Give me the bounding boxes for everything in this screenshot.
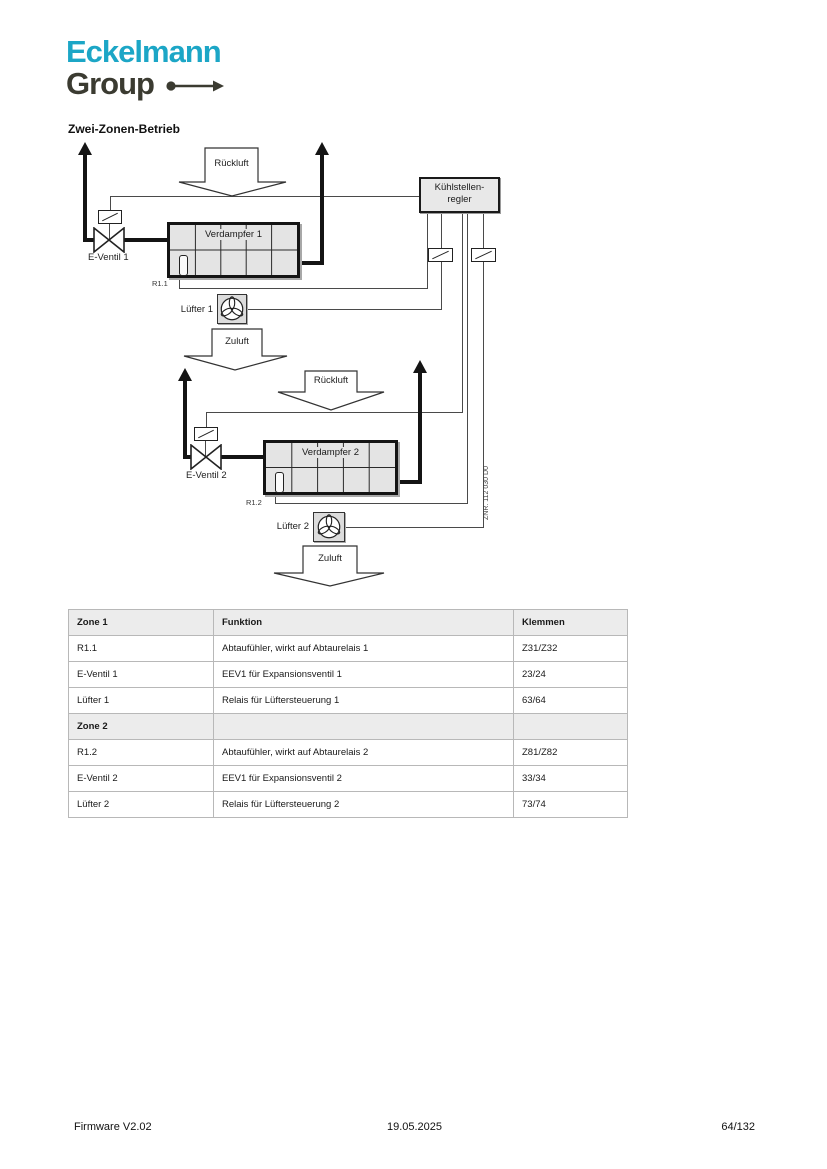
table-row: R1.2 Abtaufühler, wirkt auf Abtaurelais … xyxy=(69,740,628,766)
controller-label-line1: Kühlstellen- xyxy=(421,182,498,194)
wire-eventil2-relay-up xyxy=(206,412,207,427)
table-header-row: Zone 1 Funktion Klemmen xyxy=(69,610,628,636)
table-row: E-Ventil 2 EEV1 für Expansionsventil 2 3… xyxy=(69,766,628,792)
evaporator-1-box: Verdampfer 1 xyxy=(167,222,300,278)
expansion-valve-icon-1 xyxy=(93,227,125,253)
table-cell: E-Ventil 2 xyxy=(69,766,214,792)
wire-eventil2-riser xyxy=(462,213,463,413)
table-cell: EEV1 für Expansionsventil 2 xyxy=(214,766,514,792)
pipe-up-arrow-icon xyxy=(413,360,427,373)
defrost-sensor-icon-2 xyxy=(275,472,284,493)
defrost-sensor-icon-1 xyxy=(179,255,188,276)
wire-sensor2-riser xyxy=(467,213,468,504)
table-cell: Lüfter 2 xyxy=(69,792,214,818)
wire-fan2-controller xyxy=(345,527,484,528)
drawing-number-label: ZNR. 112 030 D0 xyxy=(483,458,495,528)
evaporator-2-box: Verdampfer 2 xyxy=(263,440,398,495)
logo-text-group: Group xyxy=(66,68,154,99)
table-cell: Z31/Z32 xyxy=(514,636,628,662)
footer-firmware-version: Firmware V2.02 xyxy=(74,1121,301,1133)
pipe-zone2-outlet-vertical xyxy=(418,372,422,484)
table-header-zone1: Zone 1 xyxy=(69,610,214,636)
supply-air-2-label: Zuluft xyxy=(303,553,357,564)
table-cell: Relais für Lüftersteuerung 2 xyxy=(214,792,514,818)
pipe-zone2-suction-vertical xyxy=(183,380,187,459)
pipe-up-arrow-icon xyxy=(178,368,192,381)
valve-2-label: E-Ventil 2 xyxy=(186,470,227,481)
terminal-assignment-table: Zone 1 Funktion Klemmen R1.1 Abtaufühler… xyxy=(68,609,628,818)
relay-icon-fan2 xyxy=(471,248,496,262)
wire-eventil2-controller xyxy=(206,412,463,413)
document-page: Eckelmann Group Zwei-Zonen-Betrieb Rückl… xyxy=(0,0,827,1169)
relay-icon-eventil2 xyxy=(194,427,218,441)
supply-air-1-label: Zuluft xyxy=(212,336,262,347)
table-cell: Zone 2 xyxy=(69,714,214,740)
expansion-valve-icon-2 xyxy=(190,444,222,470)
fan-icon-2 xyxy=(313,512,345,542)
pipe-zone2-outlet-horizontal xyxy=(395,480,422,484)
table-cell: Abtaufühler, wirkt auf Abtaurelais 2 xyxy=(214,740,514,766)
evaporator-2-label: Verdampfer 2 xyxy=(266,447,395,458)
table-header-klemmen: Klemmen xyxy=(514,610,628,636)
table-cell xyxy=(514,714,628,740)
table-cell: Z81/Z82 xyxy=(514,740,628,766)
table-cell: EEV1 für Expansionsventil 1 xyxy=(214,662,514,688)
fan-2-label: Lüfter 2 xyxy=(266,521,309,532)
pipe-up-arrow-icon xyxy=(78,142,92,155)
table-cell: 33/34 xyxy=(514,766,628,792)
page-title: Zwei-Zonen-Betrieb xyxy=(68,122,180,136)
table-cell: E-Ventil 1 xyxy=(69,662,214,688)
flow-arrow-return-air-1: Rückluft xyxy=(178,147,287,197)
fan-1-label: Lüfter 1 xyxy=(160,304,213,315)
table-cell: R1.2 xyxy=(69,740,214,766)
wire-eventil1-relay-up xyxy=(110,196,111,210)
pipe-zone1-outlet-horizontal xyxy=(297,261,324,265)
table-cell: Abtaufühler, wirkt auf Abtaurelais 1 xyxy=(214,636,514,662)
pipe-zone1-valve-evap xyxy=(123,238,169,242)
table-cell: Lüfter 1 xyxy=(69,688,214,714)
relay-icon-eventil1 xyxy=(98,210,122,224)
footer-page-number: 64/132 xyxy=(528,1121,755,1133)
wire-fan1-controller xyxy=(247,309,441,310)
table-section-row-zone2: Zone 2 xyxy=(69,714,628,740)
pipe-zone2-valve-evap xyxy=(220,455,265,459)
flow-arrow-supply-air-1: Zuluft xyxy=(183,328,288,371)
fan-icon-1 xyxy=(217,294,247,324)
evaporator-1-label: Verdampfer 1 xyxy=(170,229,297,240)
table-cell: 73/74 xyxy=(514,792,628,818)
table-row: Lüfter 1 Relais für Lüftersteuerung 1 63… xyxy=(69,688,628,714)
table-cell: 23/24 xyxy=(514,662,628,688)
pipe-zone1-suction-vertical xyxy=(83,154,87,242)
valve-1-label: E-Ventil 1 xyxy=(88,252,129,263)
table-header-funktion: Funktion xyxy=(214,610,514,636)
flow-arrow-return-air-2: Rückluft xyxy=(277,370,385,411)
page-footer: Firmware V2.02 19.05.2025 64/132 xyxy=(74,1121,755,1133)
table-cell xyxy=(214,714,514,740)
wire-sensor1-controller xyxy=(180,288,428,289)
table-cell: 63/64 xyxy=(514,688,628,714)
table-row: E-Ventil 1 EEV1 für Expansionsventil 1 2… xyxy=(69,662,628,688)
sensor-2-label: R1.2 xyxy=(246,498,262,507)
logo-arrow-icon xyxy=(158,75,238,97)
table-row: Lüfter 2 Relais für Lüftersteuerung 2 73… xyxy=(69,792,628,818)
pipe-up-arrow-icon xyxy=(315,142,329,155)
table-row: R1.1 Abtaufühler, wirkt auf Abtaurelais … xyxy=(69,636,628,662)
controller-label-line2: regler xyxy=(421,194,498,206)
sensor-1-label: R1.1 xyxy=(152,279,168,288)
relay-icon-fan1 xyxy=(428,248,453,262)
logo-text-eckelmann: Eckelmann xyxy=(66,36,221,67)
return-air-2-label: Rückluft xyxy=(305,375,357,386)
wire-sensor2-controller xyxy=(276,503,468,504)
pipe-zone1-outlet-vertical xyxy=(320,154,324,265)
table-cell: Relais für Lüftersteuerung 1 xyxy=(214,688,514,714)
footer-date: 19.05.2025 xyxy=(301,1121,528,1133)
table-cell: R1.1 xyxy=(69,636,214,662)
controller-box: Kühlstellen- regler xyxy=(419,177,500,213)
return-air-1-label: Rückluft xyxy=(205,158,258,169)
flow-arrow-supply-air-2: Zuluft xyxy=(273,545,385,587)
